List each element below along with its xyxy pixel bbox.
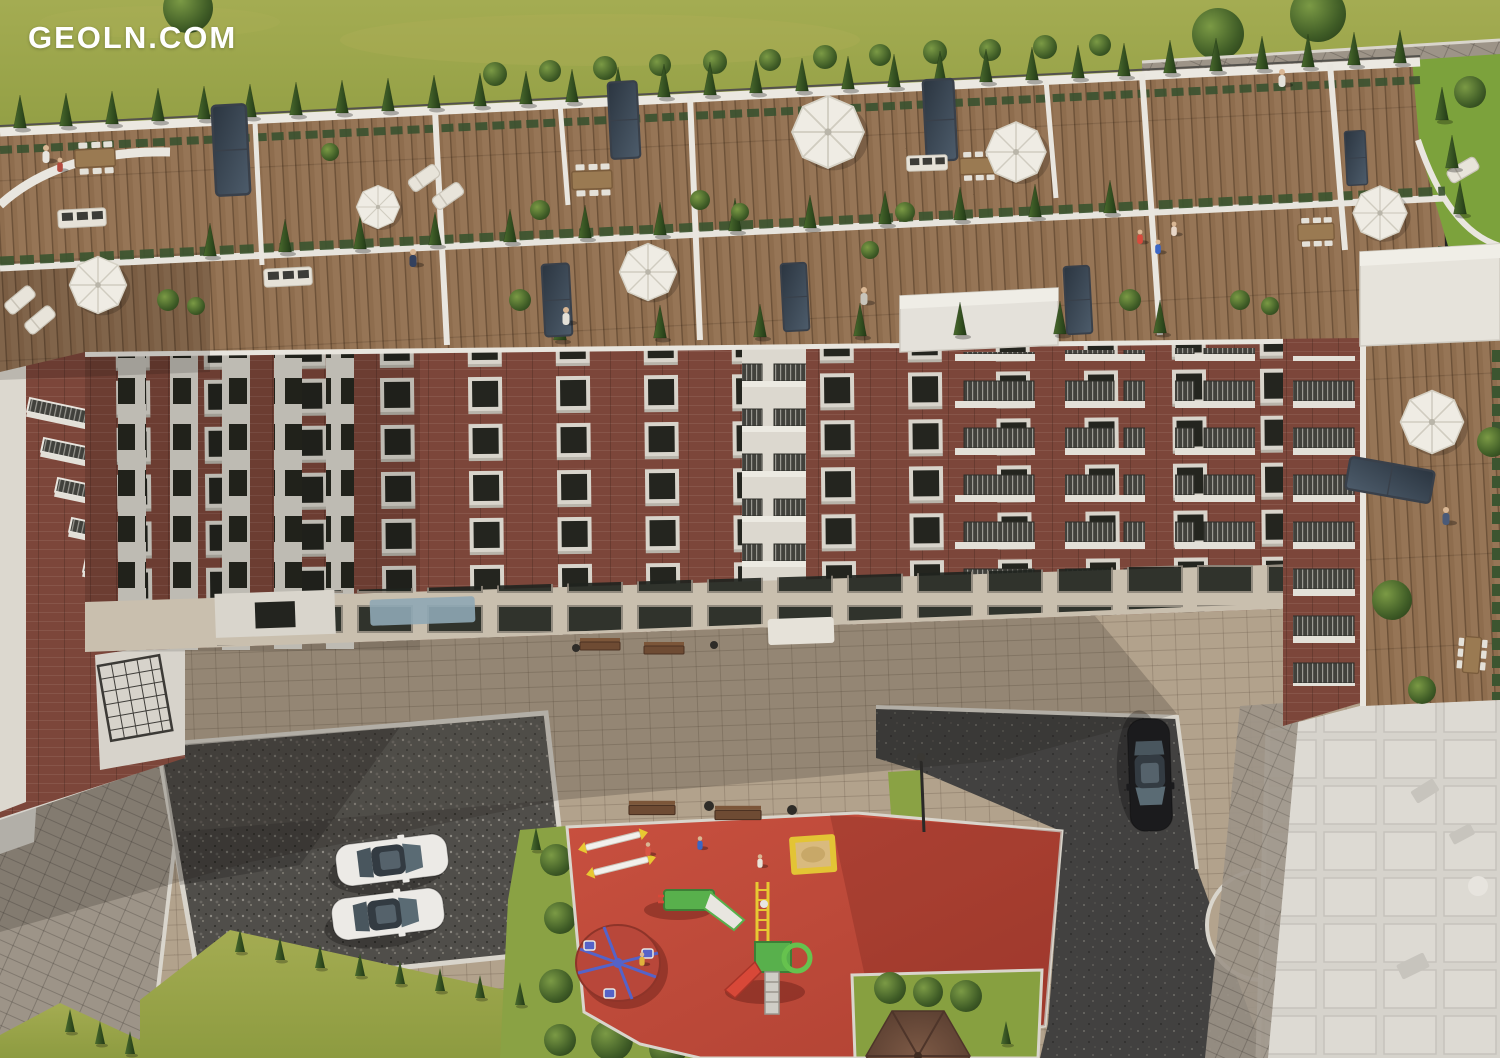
litter-bin (710, 641, 718, 649)
right-wing (1283, 332, 1500, 726)
balcony-column (955, 352, 1035, 592)
dining-set (74, 141, 116, 175)
center-balcony-bay (742, 346, 806, 602)
balcony-column (1293, 356, 1355, 686)
bench (580, 638, 620, 650)
litter-bin (787, 805, 797, 815)
outdoor-sofa (906, 155, 947, 172)
rooftop-service-tower (900, 288, 1058, 352)
outdoor-sofa (264, 267, 313, 287)
outdoor-sofa (58, 208, 107, 228)
litter-bin (572, 644, 580, 652)
dining-set (571, 163, 612, 196)
balcony-column (1175, 348, 1255, 588)
aerial-render: GEOLN.COM (0, 0, 1500, 1058)
entrance-canopy (768, 617, 835, 645)
dining-set (1456, 636, 1488, 674)
rooftop-service-tower (1360, 244, 1500, 346)
pergola (98, 655, 172, 741)
balcony-column (1065, 350, 1145, 590)
sandbox (789, 834, 838, 875)
main-building (85, 332, 1363, 652)
bench (629, 801, 675, 815)
white-neighbor-building (1205, 698, 1500, 1058)
bench (715, 806, 761, 820)
glass-canopy (370, 596, 476, 626)
geoln-watermark: GEOLN.COM (28, 20, 237, 56)
gazebo (852, 970, 1042, 1058)
ball (760, 900, 768, 908)
dining-set (1298, 217, 1335, 247)
bench (644, 642, 684, 654)
litter-bin (704, 801, 714, 811)
